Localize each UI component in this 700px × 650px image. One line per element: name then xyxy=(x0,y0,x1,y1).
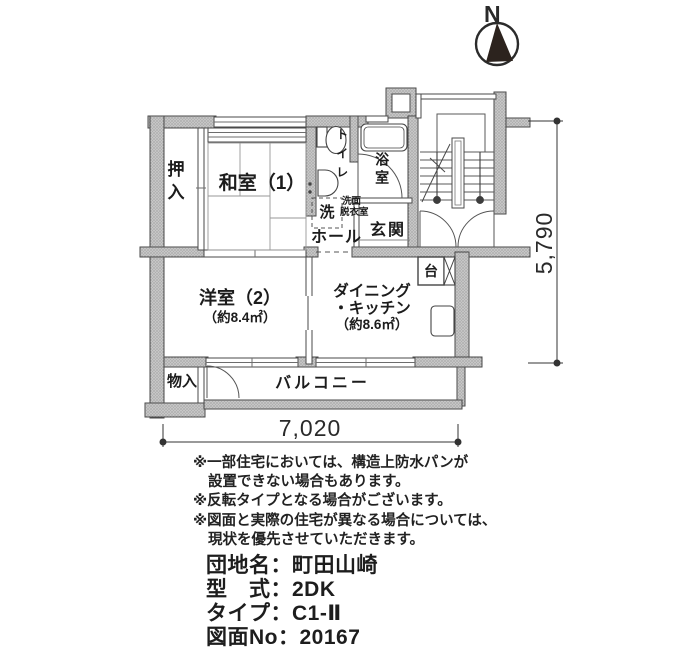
info-line-drawing-no: 図面No：20167 xyxy=(206,626,378,650)
note-line: ※一部住宅においては、構造上防水パンが xyxy=(193,454,496,473)
room-label-washitsu: 和室（1） xyxy=(210,173,314,195)
door-arc xyxy=(458,211,494,247)
thin-wall xyxy=(416,94,421,118)
shoji-window xyxy=(208,128,306,142)
property-info-block: 団地名：町田山崎 型 式：2DK タイプ：C1-Ⅱ 図面No：20167 xyxy=(206,554,378,650)
dim-dot xyxy=(455,439,461,445)
balcony-door-arc xyxy=(207,366,239,398)
closet-sliding-wall xyxy=(198,128,204,250)
room-label-dk-1: ダイニング xyxy=(322,283,422,301)
room-label-storage: 物入 xyxy=(162,373,202,390)
room-label-counter: 台 xyxy=(418,263,444,279)
room-label-dk-2: ・キッチン xyxy=(322,300,422,318)
wall-segment xyxy=(350,116,358,162)
tatami-border xyxy=(208,143,306,250)
room-label-genkan: 玄関 xyxy=(364,222,412,240)
kitchen-sink xyxy=(431,306,454,336)
stair-rail xyxy=(452,138,464,208)
wall-segment xyxy=(164,357,208,367)
dim-dot xyxy=(554,118,560,124)
tatami-lines xyxy=(208,143,306,250)
thin-wall xyxy=(366,116,388,122)
room-label-dk-area: （約8.6㎡） xyxy=(322,317,422,333)
door-arc xyxy=(420,211,456,247)
dimension-height-label: 5,790 xyxy=(531,211,557,275)
toilet-tank xyxy=(317,127,327,147)
note-line: ※反転タイプとなる場合がございます。 xyxy=(193,492,496,511)
balcony-railing xyxy=(204,400,462,409)
info-line-danchi-name: 団地名：町田山崎 xyxy=(206,554,378,578)
stair-arrow-dot xyxy=(434,197,441,204)
room-label-oshiire: 押入 xyxy=(164,160,184,240)
compass-needle-icon xyxy=(486,23,513,62)
notes-block: ※一部住宅においては、構造上防水パンが 設置できない場合もあります。 ※反転タイ… xyxy=(193,454,496,550)
wall-segment xyxy=(145,403,205,417)
bathtub xyxy=(361,124,407,151)
room-label-toilet: トイレ xyxy=(334,128,348,204)
wall-segment xyxy=(306,116,316,216)
room-label-laundry: 洗 xyxy=(313,204,341,221)
wall-segment xyxy=(413,357,482,367)
info-line-type: 型 式：2DK xyxy=(206,578,378,602)
dim-dot xyxy=(160,439,166,445)
dimension-width-label: 7,020 xyxy=(258,415,362,441)
wall-segment xyxy=(494,92,506,214)
room-label-hall: ホール xyxy=(311,229,362,247)
stair-arrow-dot xyxy=(477,197,484,204)
floorplan-page: N 押入 和室（1） トイレ 洗面 脱衣室 洗 浴室 ホール 玄関 台 ダイニン… xyxy=(0,0,700,650)
dim-dot xyxy=(554,360,560,366)
wall-segment xyxy=(140,247,204,257)
note-line: 現状を優先させていただきます。 xyxy=(193,531,496,550)
pipe-space-inner xyxy=(392,94,410,112)
room-label-western: 洋室（2） xyxy=(185,288,295,309)
room-label-western-area: （約8.4㎡） xyxy=(185,310,295,326)
stairwell-top-wall xyxy=(420,94,496,99)
room-label-bath: 浴室 xyxy=(374,152,390,200)
wall-segment xyxy=(306,116,368,127)
stair-break-line xyxy=(422,144,450,202)
room-label-balcony: バルコニー xyxy=(265,375,380,393)
wall-segment xyxy=(455,252,469,364)
door-opening xyxy=(304,296,314,330)
wall-segment xyxy=(506,118,530,127)
room-label-senmen-2: 脱衣室 xyxy=(340,208,369,219)
wall-segment xyxy=(352,247,530,257)
north-label: N xyxy=(484,1,510,27)
info-line-plan-type: タイプ：C1-Ⅱ xyxy=(206,602,378,626)
note-line: ※図面と実際の住宅が異なる場合については、 xyxy=(193,512,496,531)
note-line: 設置できない場合もあります。 xyxy=(193,473,496,492)
